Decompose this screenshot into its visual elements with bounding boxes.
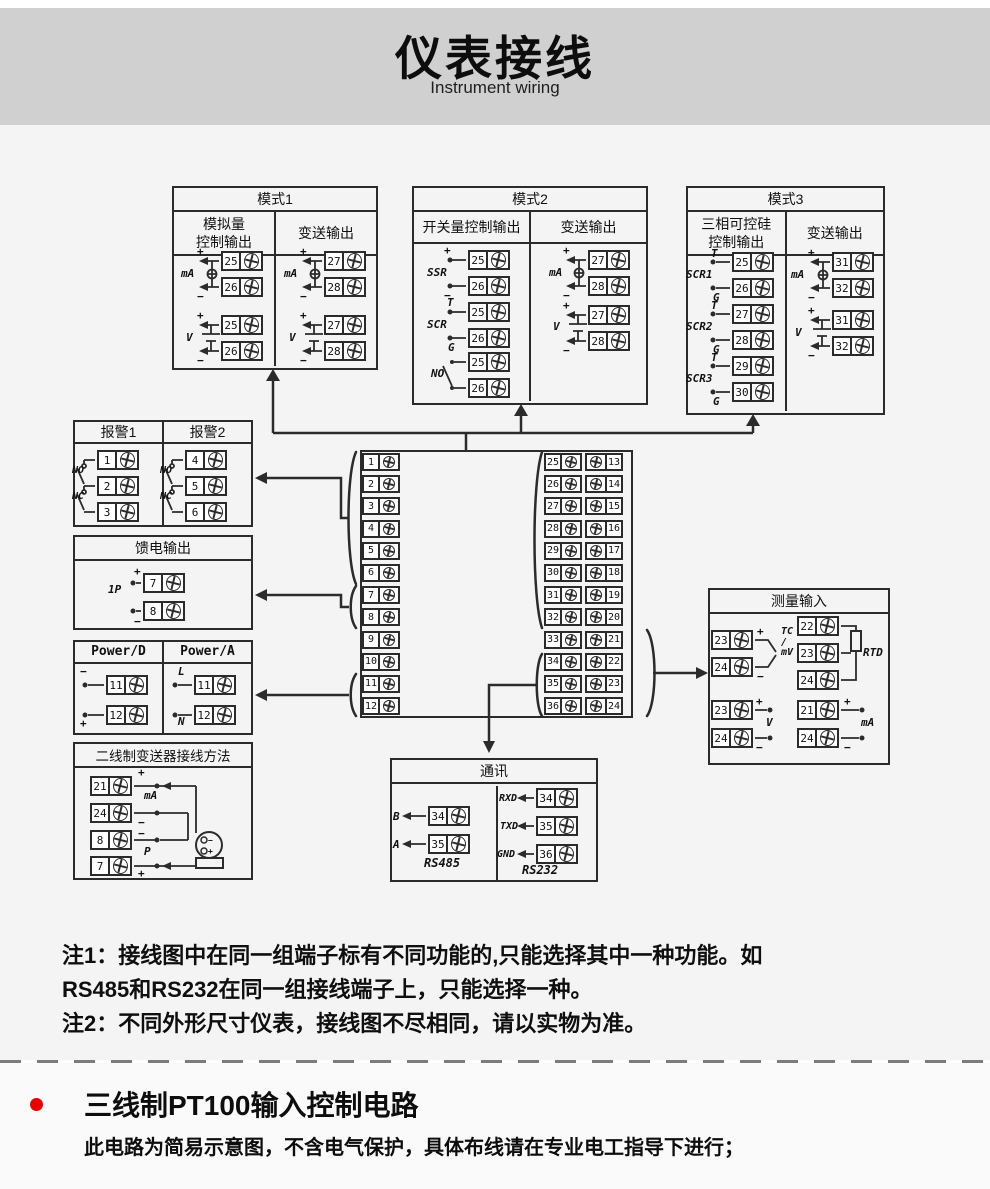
terminal: 11 (106, 675, 148, 695)
screw-icon (378, 675, 400, 693)
note2: 注2：不同外形尺寸仪表，接线图不尽相同，请以实物为准。 (62, 1006, 646, 1038)
plus-label: + (563, 245, 570, 257)
terminal-number: 23 (711, 630, 731, 650)
terminal: 4 (185, 450, 227, 470)
screw-icon (815, 728, 839, 748)
terminal-number: 18 (605, 564, 623, 582)
terminal-number: 25 (468, 352, 488, 372)
terminal: 26 (544, 475, 582, 493)
screw-icon (212, 675, 236, 695)
screw-icon (108, 856, 132, 876)
terminal: 11 (194, 675, 236, 695)
terminal: 24 (797, 670, 839, 690)
mode3-col2-header: 变送输出 (787, 212, 884, 256)
terminal: 35 (428, 834, 470, 854)
screw-icon (585, 675, 607, 693)
terminal: 16 (585, 520, 623, 538)
terminal: 22 (585, 653, 623, 671)
screw-icon (378, 453, 400, 471)
terminal-number: 24 (90, 803, 110, 823)
terminal: 6 (185, 502, 227, 522)
terminal: 23 (711, 700, 753, 720)
terminal: 9 (362, 631, 400, 649)
screw-icon (378, 697, 400, 715)
terminal-number: 27 (588, 305, 608, 325)
screw-icon (378, 631, 400, 649)
terminal: 1 (97, 450, 139, 470)
ma-label: mA (284, 268, 297, 280)
nc-label: NC (160, 492, 172, 503)
transmitter-minus-label: − (208, 837, 213, 845)
terminal-number: 28 (732, 330, 752, 350)
terminal: 13 (585, 453, 623, 471)
terminal: 21 (90, 776, 132, 796)
terminal: 34 (428, 806, 470, 826)
screw-icon (585, 497, 607, 515)
terminal: 8 (90, 830, 132, 850)
terminal-number: 35 (536, 816, 556, 836)
t-label: T (711, 352, 718, 364)
screw-icon (560, 675, 582, 693)
terminal: 35 (536, 816, 578, 836)
ma-label: mA (144, 790, 157, 802)
screw-icon (606, 276, 630, 296)
plus-label: + (80, 718, 87, 730)
terminal-number: 26 (221, 277, 241, 297)
terminal-number: 32 (832, 278, 852, 298)
terminal: 12 (194, 705, 236, 725)
minus-label: − (844, 742, 851, 754)
screw-icon (446, 806, 470, 826)
terminal-number: 12 (106, 705, 126, 725)
plus-label: + (844, 696, 851, 708)
terminal: 32 (544, 608, 582, 626)
t-label: T (711, 300, 718, 312)
terminal: 30 (732, 382, 774, 402)
tc-mv-label: TC / mV (781, 627, 793, 659)
screw-icon (815, 616, 839, 636)
terminal-number: 23 (605, 675, 623, 693)
minus-label: − (757, 671, 764, 683)
terminal: 8 (362, 608, 400, 626)
screw-icon (115, 450, 139, 470)
terminal-number: 26 (468, 328, 488, 348)
screw-icon (115, 476, 139, 496)
screw-icon (815, 643, 839, 663)
terminal-number: 27 (732, 304, 752, 324)
terminal: 5 (362, 542, 400, 560)
terminal: 23 (585, 675, 623, 693)
terminal-number: 31 (832, 310, 852, 330)
screw-icon (446, 834, 470, 854)
n-label: N (178, 716, 185, 728)
terminal: 28 (732, 330, 774, 350)
comm-title: 通讯 (392, 760, 596, 784)
screw-icon (850, 278, 874, 298)
terminal: 24 (585, 697, 623, 715)
ma-label: mA (549, 267, 562, 279)
terminal: 35 (544, 675, 582, 693)
screw-icon (560, 608, 582, 626)
terminal-number: 12 (194, 705, 214, 725)
minus-label: − (80, 666, 87, 678)
minus-label: − (197, 355, 204, 367)
terminal-number: 19 (605, 586, 623, 604)
l-label: L (178, 666, 185, 678)
plus-label: + (563, 300, 570, 312)
plus-label: + (808, 247, 815, 259)
terminal: 27 (588, 250, 630, 270)
rs485-label: RS485 (424, 857, 460, 870)
mode1-col2-header: 变送输出 (276, 212, 376, 256)
terminal-number: 32 (832, 336, 852, 356)
central-right-terminals: 2513 2614 2715 2816 2917 3018 3119 3220 … (544, 453, 623, 715)
terminal: 5 (185, 476, 227, 496)
t-label: T (711, 248, 718, 260)
screw-icon (585, 453, 607, 471)
terminal: 25 (544, 453, 582, 471)
screw-icon (750, 382, 774, 402)
terminal-number: 28 (324, 277, 344, 297)
terminal-number: 6 (185, 502, 205, 522)
terminal-number: 34 (428, 806, 448, 826)
screw-icon (554, 844, 578, 864)
terminal: 27 (732, 304, 774, 324)
screw-icon (486, 276, 510, 296)
terminal-number: 25 (468, 302, 488, 322)
terminal: 24 (797, 728, 839, 748)
screw-icon (378, 542, 400, 560)
terminal: 25 (468, 250, 510, 270)
screw-icon (585, 697, 607, 715)
terminal: 7 (90, 856, 132, 876)
minus-label: − (138, 828, 145, 840)
terminal-number: 22 (797, 616, 817, 636)
power-d-header: Power/D (75, 642, 162, 664)
screw-icon (378, 520, 400, 538)
terminal-number: 15 (605, 497, 623, 515)
screw-icon (378, 564, 400, 582)
terminal: 3 (362, 497, 400, 515)
terminal-number: 16 (605, 520, 623, 538)
terminal: 27 (588, 305, 630, 325)
power-a-header: Power/A (164, 642, 251, 664)
screw-icon (585, 542, 607, 560)
screw-icon (850, 336, 874, 356)
screw-icon (203, 450, 227, 470)
v-label: V (553, 321, 560, 333)
v-label: V (795, 327, 802, 339)
screw-icon (750, 330, 774, 350)
terminal-number: 27 (324, 251, 344, 271)
screw-icon (560, 586, 582, 604)
terminal-number: 2 (97, 476, 117, 496)
minus-label: − (197, 291, 204, 303)
screw-icon (750, 252, 774, 272)
page-subtitle: Instrument wiring (0, 78, 990, 98)
screw-icon (729, 728, 753, 748)
screw-icon (560, 520, 582, 538)
terminal: 17 (585, 542, 623, 560)
minus-label: − (300, 291, 307, 303)
scr-label: SCR (427, 319, 447, 331)
screw-icon (212, 705, 236, 725)
terminal: 31 (832, 252, 874, 272)
screw-icon (342, 341, 366, 361)
terminal: 22 (797, 616, 839, 636)
terminal: 24 (711, 657, 753, 677)
terminal: 21 (585, 631, 623, 649)
screw-icon (378, 653, 400, 671)
gnd-label: GND (497, 850, 515, 861)
terminal: 27 (544, 497, 582, 515)
terminal: 12 (362, 697, 400, 715)
terminal-number: 23 (711, 700, 731, 720)
measure-input-title: 测量输入 (710, 590, 888, 614)
terminal-number: 13 (605, 453, 623, 471)
screw-icon (750, 356, 774, 376)
terminal: 27 (324, 315, 366, 335)
terminal: 21 (797, 700, 839, 720)
screw-icon (239, 341, 263, 361)
screw-icon (750, 304, 774, 324)
b-label: B (393, 811, 400, 823)
screw-icon (560, 697, 582, 715)
terminal-number: 20 (605, 608, 623, 626)
screw-icon (115, 502, 139, 522)
screw-icon (560, 564, 582, 582)
red-bullet-icon (30, 1098, 43, 1111)
g-label: G (448, 342, 455, 354)
central-left-terminals: 1 2 3 4 5 6 7 8 9 10 11 12 (362, 453, 400, 715)
screw-icon (554, 788, 578, 808)
scr3-label: SCR3 (686, 373, 713, 385)
terminal: 3 (97, 502, 139, 522)
note1-line2: RS485和RS232在同一组接线端子上，只能选择一种。 (62, 972, 593, 1004)
screw-icon (815, 700, 839, 720)
screw-icon (585, 586, 607, 604)
terminal: 36 (544, 697, 582, 715)
plus-label: + (808, 305, 815, 317)
terminal: 25 (221, 251, 263, 271)
screw-icon (342, 315, 366, 335)
terminal: 27 (324, 251, 366, 271)
screw-icon (378, 497, 400, 515)
terminal-number: 29 (732, 356, 752, 376)
transmitter-plus-label: + (208, 848, 213, 856)
terminal: 7 (362, 586, 400, 604)
minus-label: − (756, 742, 763, 754)
terminal: 28 (324, 341, 366, 361)
screw-icon (585, 631, 607, 649)
screw-icon (486, 352, 510, 372)
screw-icon (815, 670, 839, 690)
terminal-number: 23 (797, 643, 817, 663)
screw-icon (560, 542, 582, 560)
screw-icon (585, 564, 607, 582)
terminal-number: 21 (797, 700, 817, 720)
screw-icon (108, 830, 132, 850)
screw-icon (108, 776, 132, 796)
minus-label: − (134, 616, 141, 628)
screw-icon (239, 315, 263, 335)
terminal: 26 (468, 328, 510, 348)
screw-icon (378, 475, 400, 493)
terminal-number: 36 (536, 844, 556, 864)
screw-icon (606, 250, 630, 270)
screw-icon (124, 675, 148, 695)
screw-icon (585, 608, 607, 626)
alarm2-header: 报警2 (164, 422, 251, 444)
screw-icon (729, 700, 753, 720)
screw-icon (486, 250, 510, 270)
terminal-number: 14 (605, 475, 623, 493)
terminal-number: 28 (588, 331, 608, 351)
terminal-number: 26 (468, 378, 488, 398)
nc-label: NC (72, 492, 84, 503)
screw-icon (560, 453, 582, 471)
screw-icon (606, 331, 630, 351)
terminal: 23 (797, 643, 839, 663)
plus-label: + (197, 310, 204, 322)
plus-label: + (757, 626, 764, 638)
terminal: 28 (588, 331, 630, 351)
screw-icon (161, 601, 185, 621)
terminal-number: 21 (90, 776, 110, 796)
terminal-number: 11 (194, 675, 214, 695)
screw-icon (342, 277, 366, 297)
terminal-number: 25 (221, 251, 241, 271)
screw-icon (560, 475, 582, 493)
note1-line1: 注1：接线图中在同一组端子标有不同功能的,只能选择其中一种功能。如 (62, 938, 762, 970)
terminal: 14 (585, 475, 623, 493)
feed-output-title: 馈电输出 (75, 537, 251, 561)
mode1-col1-header: 模拟量 控制输出 (174, 212, 274, 256)
screw-icon (606, 305, 630, 325)
v-label: V (289, 332, 296, 344)
terminal-number: 17 (605, 542, 623, 560)
terminal-number: 26 (732, 278, 752, 298)
terminal-number: 27 (588, 250, 608, 270)
dashed-divider (0, 1060, 990, 1063)
terminal: 28 (544, 520, 582, 538)
screw-icon (850, 310, 874, 330)
screw-icon (161, 573, 185, 593)
plus-label: + (138, 767, 145, 779)
terminal: 26 (468, 378, 510, 398)
instrument-wiring-page: 仪表接线 Instrument wiring 模式1 模拟量 控制输出 变送输出… (0, 0, 990, 1189)
minus-label: − (808, 350, 815, 362)
screw-icon (486, 378, 510, 398)
terminal-number: 8 (90, 830, 110, 850)
no-label: NO (72, 466, 84, 477)
txd-label: TXD (500, 822, 518, 833)
plus-label: + (300, 246, 307, 258)
terminal: 8 (143, 601, 185, 621)
screw-icon (124, 705, 148, 725)
plus-label: + (300, 310, 307, 322)
v-label: V (766, 717, 773, 729)
screw-icon (750, 278, 774, 298)
terminal: 34 (544, 653, 582, 671)
screw-icon (203, 476, 227, 496)
terminal-number: 26 (221, 341, 241, 361)
terminal: 34 (536, 788, 578, 808)
screw-icon (342, 251, 366, 271)
terminal-number: 34 (536, 788, 556, 808)
screw-icon (585, 653, 607, 671)
screw-icon (729, 657, 753, 677)
terminal: 28 (588, 276, 630, 296)
terminal-number: 22 (605, 653, 623, 671)
ma-label: mA (181, 268, 194, 280)
rs232-label: RS232 (522, 864, 558, 877)
terminal-number: 5 (185, 476, 205, 496)
screw-icon (203, 502, 227, 522)
mode2-col2-header: 变送输出 (531, 212, 646, 244)
terminal-number: 3 (97, 502, 117, 522)
terminal: 29 (732, 356, 774, 376)
no-label: NO (160, 466, 172, 477)
screw-icon (554, 816, 578, 836)
two-wire-title: 二线制变送器接线方法 (75, 744, 251, 768)
alarm1-header: 报警1 (75, 422, 162, 444)
terminal: 23 (711, 630, 753, 650)
terminal: 25 (732, 252, 774, 272)
terminal: 30 (544, 564, 582, 582)
scr1-label: SCR1 (686, 269, 713, 281)
screw-icon (585, 475, 607, 493)
t-label: T (447, 297, 454, 309)
terminal: 28 (324, 277, 366, 297)
terminal: 31 (544, 586, 582, 604)
terminal: 10 (362, 653, 400, 671)
plus-label: + (444, 245, 451, 257)
screw-icon (560, 497, 582, 515)
minus-label: − (300, 355, 307, 367)
terminal: 4 (362, 520, 400, 538)
screw-icon (585, 520, 607, 538)
screw-icon (729, 630, 753, 650)
terminal: 25 (468, 302, 510, 322)
mode2-title: 模式2 (414, 188, 646, 212)
screw-icon (486, 302, 510, 322)
terminal: 1 (362, 453, 400, 471)
mode2-col1-header: 开关量控制输出 (414, 212, 529, 244)
screw-icon (850, 252, 874, 272)
terminal-number: 24 (797, 670, 817, 690)
terminal: 25 (468, 352, 510, 372)
terminal-number: 24 (711, 657, 731, 677)
terminal-number: 26 (468, 276, 488, 296)
terminal: 12 (106, 705, 148, 725)
terminal: 24 (711, 728, 753, 748)
screw-icon (378, 586, 400, 604)
terminal-number: 21 (605, 631, 623, 649)
terminal-number: 27 (324, 315, 344, 335)
terminal-number: 30 (732, 382, 752, 402)
1p-label: 1P (108, 584, 121, 596)
terminal-number: 28 (324, 341, 344, 361)
terminal-number: 1 (97, 450, 117, 470)
terminal-number: 24 (605, 697, 623, 715)
screw-icon (108, 803, 132, 823)
terminal: 19 (585, 586, 623, 604)
terminal-number: 35 (428, 834, 448, 854)
plus-label: + (756, 696, 763, 708)
ma-label: mA (791, 269, 804, 281)
mode1-title: 模式1 (174, 188, 376, 212)
